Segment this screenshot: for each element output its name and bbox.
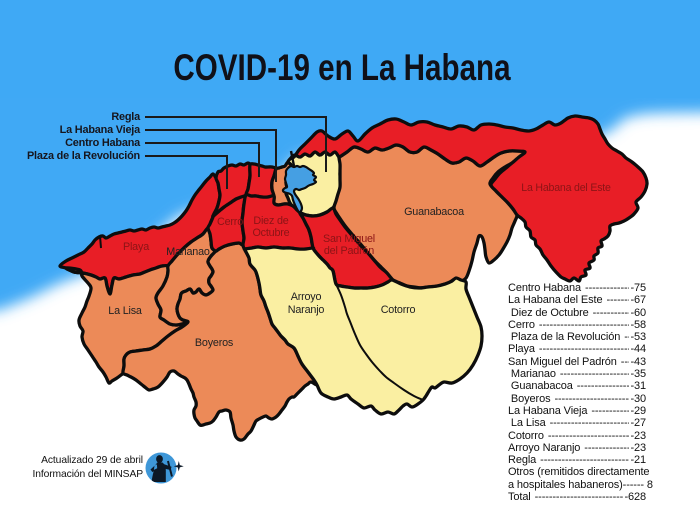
svg-text:Diez de: Diez de bbox=[253, 215, 288, 227]
svg-text:Boyeros: Boyeros bbox=[195, 337, 234, 349]
svg-text:del Padrón: del Padrón bbox=[324, 245, 374, 257]
svg-text:Cerro: Cerro bbox=[217, 216, 243, 228]
svg-text:Naranjo: Naranjo bbox=[288, 304, 325, 316]
svg-text:La Lisa: La Lisa bbox=[108, 305, 142, 317]
svg-text:Playa: Playa bbox=[123, 241, 149, 253]
svg-text:La Habana del Este: La Habana del Este bbox=[521, 182, 611, 194]
svg-text:Cotorro: Cotorro bbox=[381, 304, 416, 316]
svg-text:San Miguel: San Miguel bbox=[323, 233, 375, 245]
svg-text:Arroyo: Arroyo bbox=[291, 291, 322, 303]
svg-text:Octubre: Octubre bbox=[252, 227, 289, 239]
svg-text:Guanabacoa: Guanabacoa bbox=[404, 206, 464, 218]
svg-text:Marianao: Marianao bbox=[166, 246, 210, 258]
